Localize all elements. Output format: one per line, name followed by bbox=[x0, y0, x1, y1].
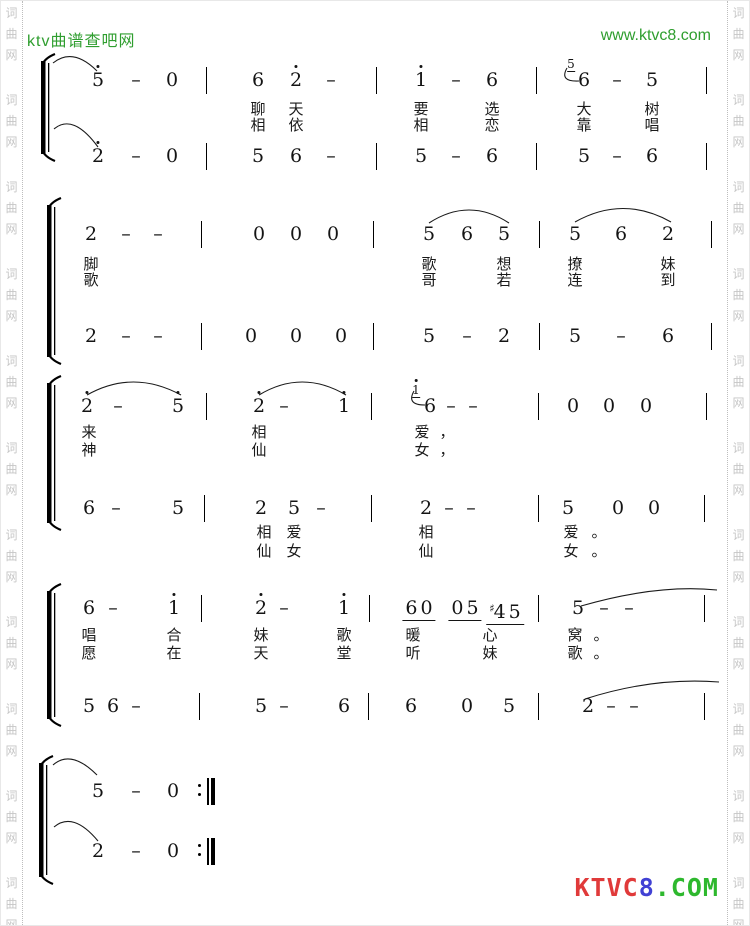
lyric-char: 来 bbox=[81, 425, 96, 440]
note-token: – bbox=[466, 499, 476, 518]
lyric-char: 。 bbox=[591, 544, 606, 559]
note-token: 1 bbox=[412, 384, 420, 398]
note-token: 2 bbox=[290, 71, 302, 90]
note-token: – bbox=[446, 397, 456, 416]
lyric-char: 大 bbox=[576, 102, 591, 117]
repeat-end-barline bbox=[198, 838, 218, 865]
note-token: – bbox=[108, 599, 118, 618]
note-token: 2 bbox=[498, 327, 510, 346]
lyric-char: 唱 bbox=[81, 628, 96, 643]
lyric-char: 天 bbox=[288, 102, 303, 117]
note-token: 0 bbox=[603, 397, 615, 416]
barline bbox=[368, 693, 369, 720]
note-token: 1 bbox=[168, 599, 180, 618]
lyric-char: 到 bbox=[660, 273, 675, 288]
note-token: 5 bbox=[569, 327, 581, 346]
note-token: 5 bbox=[92, 782, 104, 801]
lyric-char: 妹 bbox=[482, 646, 497, 661]
note-token: – bbox=[606, 697, 616, 716]
note-token: 6 bbox=[338, 697, 350, 716]
note-token: – bbox=[326, 147, 336, 166]
thin-barline bbox=[207, 838, 209, 865]
note-token: – bbox=[279, 397, 289, 416]
note-token: 5 bbox=[92, 71, 104, 90]
note-token: 5 bbox=[172, 397, 184, 416]
lyric-char: 哥 bbox=[421, 273, 436, 288]
repeat-dot bbox=[198, 844, 201, 847]
lyric-char: 暖 bbox=[405, 628, 420, 643]
lyric-char: 女 bbox=[286, 544, 301, 559]
lyric-char: 女 bbox=[414, 443, 429, 458]
note-token: – bbox=[131, 697, 141, 716]
note-token: 6 bbox=[662, 327, 674, 346]
barline bbox=[206, 143, 207, 170]
thick-barline bbox=[211, 778, 215, 805]
lyric-char: 相 bbox=[251, 425, 266, 440]
note-token: 0 bbox=[290, 327, 302, 346]
note-token: 2 bbox=[582, 697, 594, 716]
note-token: 5 bbox=[172, 499, 184, 518]
barline bbox=[704, 595, 705, 622]
barline bbox=[201, 323, 202, 350]
barline bbox=[201, 595, 202, 622]
lyric-char: 。 bbox=[591, 525, 606, 540]
lyric-char: 妹 bbox=[253, 628, 268, 643]
lyric-char: 撩 bbox=[567, 257, 582, 272]
lyric-char: 愿 bbox=[81, 646, 96, 661]
note-token: – bbox=[612, 147, 622, 166]
note-token: 2 bbox=[81, 397, 93, 416]
barline bbox=[201, 221, 202, 248]
barline bbox=[376, 143, 377, 170]
note-token: 0 bbox=[327, 225, 339, 244]
note-token: – bbox=[131, 842, 141, 861]
note-token: 2 bbox=[85, 327, 97, 346]
note-token: 6 bbox=[405, 697, 417, 716]
note-token: 5 bbox=[498, 225, 510, 244]
lyric-char: 。 bbox=[593, 646, 608, 661]
note-token: 6 bbox=[107, 697, 119, 716]
thin-barline bbox=[207, 778, 209, 805]
note-token: 0 bbox=[335, 327, 347, 346]
lyric-char: 女 bbox=[563, 544, 578, 559]
note-token: 5 bbox=[423, 327, 435, 346]
lyric-char: 心 bbox=[482, 628, 497, 643]
logo-segment: .COM bbox=[655, 873, 719, 902]
note-token: 6 bbox=[461, 225, 473, 244]
sharp-accidental-icon: ♯ bbox=[489, 602, 494, 615]
lyric-char: 要 bbox=[413, 102, 428, 117]
lyric-char: 相 bbox=[250, 118, 265, 133]
note-token: 5 bbox=[415, 147, 427, 166]
note-token: – bbox=[468, 397, 478, 416]
lyric-char: 连 bbox=[567, 273, 582, 288]
lyric-char: 仙 bbox=[418, 544, 433, 559]
octave-dot bbox=[97, 141, 100, 144]
note-token: 2 bbox=[662, 225, 674, 244]
barline bbox=[704, 693, 705, 720]
sheet-music-page: 词曲网词曲网词曲网词曲网词曲网词曲网词曲网词曲网词曲网词曲网词曲网 词曲网词曲网… bbox=[0, 0, 750, 926]
lyric-char: 堂 bbox=[336, 646, 351, 661]
note-token: – bbox=[131, 71, 141, 90]
repeat-end-barline bbox=[198, 778, 218, 805]
note-token: 2 bbox=[420, 499, 432, 518]
note-token: 60 bbox=[402, 599, 435, 621]
barline bbox=[369, 595, 370, 622]
lyric-char: 恋 bbox=[484, 118, 499, 133]
lyric-char: 爱 bbox=[563, 525, 578, 540]
note-token: 5 bbox=[252, 147, 264, 166]
note-token: 0 bbox=[167, 782, 179, 801]
octave-dot bbox=[260, 593, 263, 596]
note-token: – bbox=[316, 499, 326, 518]
octave-dot bbox=[86, 391, 89, 394]
note-token: 0 bbox=[567, 397, 579, 416]
barline bbox=[373, 323, 374, 350]
barline bbox=[199, 693, 200, 720]
note-token: 6 bbox=[578, 71, 590, 90]
note-token: 0 bbox=[640, 397, 652, 416]
repeat-dot bbox=[198, 793, 201, 796]
barline bbox=[373, 221, 374, 248]
note-token: – bbox=[121, 225, 131, 244]
note-token: 5 bbox=[562, 499, 574, 518]
note-token: 5 bbox=[255, 697, 267, 716]
barline bbox=[536, 67, 537, 94]
note-token: 5 bbox=[423, 225, 435, 244]
note-token: – bbox=[153, 225, 163, 244]
lyric-char: 靠 bbox=[576, 118, 591, 133]
note-token: 0 bbox=[166, 71, 178, 90]
lyric-char: 歌 bbox=[421, 257, 436, 272]
lyric-char: 相 bbox=[413, 118, 428, 133]
note-token: – bbox=[121, 327, 131, 346]
note-token: – bbox=[111, 499, 121, 518]
note-token: 6 bbox=[486, 71, 498, 90]
barline bbox=[206, 393, 207, 420]
note-token: – bbox=[444, 499, 454, 518]
lyric-char: 若 bbox=[496, 273, 511, 288]
note-token: 5 bbox=[578, 147, 590, 166]
lyric-char: 神 bbox=[81, 443, 96, 458]
note-token: – bbox=[451, 147, 461, 166]
note-token: – bbox=[279, 599, 289, 618]
octave-dot bbox=[177, 391, 180, 394]
note-token: 0 bbox=[253, 225, 265, 244]
lyric-char: 聊 bbox=[250, 102, 265, 117]
barline bbox=[538, 693, 539, 720]
barline bbox=[711, 323, 712, 350]
lyric-char: 歌 bbox=[83, 273, 98, 288]
lyric-char: ， bbox=[439, 443, 454, 458]
note-token: 6 bbox=[424, 397, 436, 416]
barline bbox=[376, 67, 377, 94]
note-token: – bbox=[462, 327, 472, 346]
note-token: 5 bbox=[567, 58, 575, 72]
lyric-char: 歌 bbox=[567, 646, 582, 661]
footer-logo-link[interactable]: KTVC8.COM bbox=[575, 873, 720, 902]
note-token: 5 bbox=[288, 499, 300, 518]
note-token: 6 bbox=[83, 599, 95, 618]
note-token: 0 bbox=[167, 842, 179, 861]
octave-dot bbox=[295, 65, 298, 68]
note-token: 5 bbox=[572, 599, 584, 618]
lyric-char: ， bbox=[439, 425, 454, 440]
note-token: 2 bbox=[255, 599, 267, 618]
note-token: – bbox=[326, 71, 336, 90]
lyric-char: 。 bbox=[593, 628, 608, 643]
note-token: 6 bbox=[486, 147, 498, 166]
lyric-char: 依 bbox=[288, 118, 303, 133]
note-token: ♯45 bbox=[486, 599, 524, 625]
lyric-char: 仙 bbox=[251, 443, 266, 458]
octave-dot bbox=[258, 391, 261, 394]
note-token: 6 bbox=[646, 147, 658, 166]
lyric-char: 窝 bbox=[567, 628, 582, 643]
note-token: 1 bbox=[338, 397, 350, 416]
note-token: 2 bbox=[253, 397, 265, 416]
note-token: – bbox=[629, 697, 639, 716]
note-token: – bbox=[599, 599, 609, 618]
barline bbox=[371, 393, 372, 420]
note-token: 0 bbox=[166, 147, 178, 166]
score-area: 5–062–1–656–5聊天要选大树相依相恋靠唱2–056–5–65–62––… bbox=[1, 1, 749, 925]
logo-segment: 8 bbox=[639, 873, 655, 902]
thick-barline bbox=[211, 838, 215, 865]
barline bbox=[706, 393, 707, 420]
octave-dot bbox=[173, 593, 176, 596]
lyric-char: 在 bbox=[166, 646, 181, 661]
note-token: 0 bbox=[648, 499, 660, 518]
lyric-char: 合 bbox=[166, 628, 181, 643]
note-token: – bbox=[131, 147, 141, 166]
repeat-dot bbox=[198, 853, 201, 856]
note-token: 2 bbox=[92, 147, 104, 166]
note-token: – bbox=[451, 71, 461, 90]
barline bbox=[371, 495, 372, 522]
note-token: – bbox=[616, 327, 626, 346]
note-token: – bbox=[153, 327, 163, 346]
barline bbox=[706, 67, 707, 94]
note-token: – bbox=[131, 782, 141, 801]
note-token: 6 bbox=[615, 225, 627, 244]
lyric-char: 听 bbox=[405, 646, 420, 661]
note-token: 5 bbox=[569, 225, 581, 244]
octave-dot bbox=[97, 65, 100, 68]
lyric-char: 相 bbox=[418, 525, 433, 540]
lyric-char: 妹 bbox=[660, 257, 675, 272]
barline bbox=[536, 143, 537, 170]
note-token: – bbox=[279, 697, 289, 716]
barline bbox=[204, 495, 205, 522]
barline bbox=[538, 595, 539, 622]
lyric-char: 选 bbox=[484, 102, 499, 117]
note-token: – bbox=[612, 71, 622, 90]
octave-dot bbox=[420, 65, 423, 68]
lyric-char: 想 bbox=[496, 257, 511, 272]
note-token: 5 bbox=[83, 697, 95, 716]
note-token: 6 bbox=[252, 71, 264, 90]
note-token: 1 bbox=[415, 71, 427, 90]
lyric-char: 天 bbox=[253, 646, 268, 661]
barline bbox=[706, 143, 707, 170]
note-token: 2 bbox=[255, 499, 267, 518]
lyric-char: 爱 bbox=[286, 525, 301, 540]
octave-dot bbox=[414, 379, 417, 382]
note-token: 6 bbox=[83, 499, 95, 518]
barline bbox=[206, 67, 207, 94]
barline bbox=[539, 323, 540, 350]
logo-segment: KTVC bbox=[575, 873, 639, 902]
note-token: 0 bbox=[245, 327, 257, 346]
lyric-char: 唱 bbox=[644, 118, 659, 133]
lyric-char: 相 bbox=[256, 525, 271, 540]
barline bbox=[539, 221, 540, 248]
note-token: 5 bbox=[646, 71, 658, 90]
octave-dot bbox=[343, 391, 346, 394]
note-token: 2 bbox=[85, 225, 97, 244]
barline bbox=[538, 393, 539, 420]
repeat-dot bbox=[198, 784, 201, 787]
note-token: 6 bbox=[290, 147, 302, 166]
note-token: 0 bbox=[461, 697, 473, 716]
note-token: 5 bbox=[503, 697, 515, 716]
lyric-char: 树 bbox=[644, 102, 659, 117]
lyric-char: 歌 bbox=[336, 628, 351, 643]
note-token: – bbox=[113, 397, 123, 416]
octave-dot bbox=[343, 593, 346, 596]
lyric-char: 脚 bbox=[83, 257, 98, 272]
note-token: 1 bbox=[338, 599, 350, 618]
note-token: 05 bbox=[448, 599, 481, 621]
barline bbox=[704, 495, 705, 522]
lyric-char: 爱 bbox=[414, 425, 429, 440]
barline bbox=[538, 495, 539, 522]
barline bbox=[711, 221, 712, 248]
note-token: – bbox=[624, 599, 634, 618]
note-token: 0 bbox=[290, 225, 302, 244]
note-token: 0 bbox=[612, 499, 624, 518]
lyric-char: 仙 bbox=[256, 544, 271, 559]
note-token: 2 bbox=[92, 842, 104, 861]
